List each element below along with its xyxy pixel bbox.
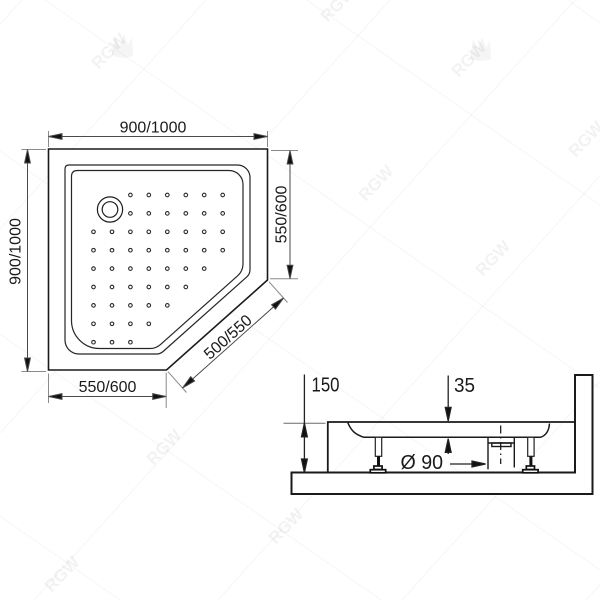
svg-text:RGW: RGW <box>265 504 308 548</box>
svg-text:550/600: 550/600 <box>79 379 137 396</box>
svg-text:900/1000: 900/1000 <box>120 120 187 137</box>
svg-text:900/1000: 900/1000 <box>8 218 25 285</box>
svg-text:RGW: RGW <box>472 236 515 280</box>
svg-text:RGW: RGW <box>143 425 186 469</box>
svg-text:RGW: RGW <box>355 161 398 205</box>
svg-text:Ø 90: Ø 90 <box>401 451 444 474</box>
svg-text:RGW: RGW <box>41 552 84 596</box>
svg-text:35: 35 <box>454 374 475 397</box>
svg-text:150: 150 <box>312 374 340 397</box>
svg-text:RGW: RGW <box>565 117 600 161</box>
svg-text:550/600: 550/600 <box>274 185 291 243</box>
